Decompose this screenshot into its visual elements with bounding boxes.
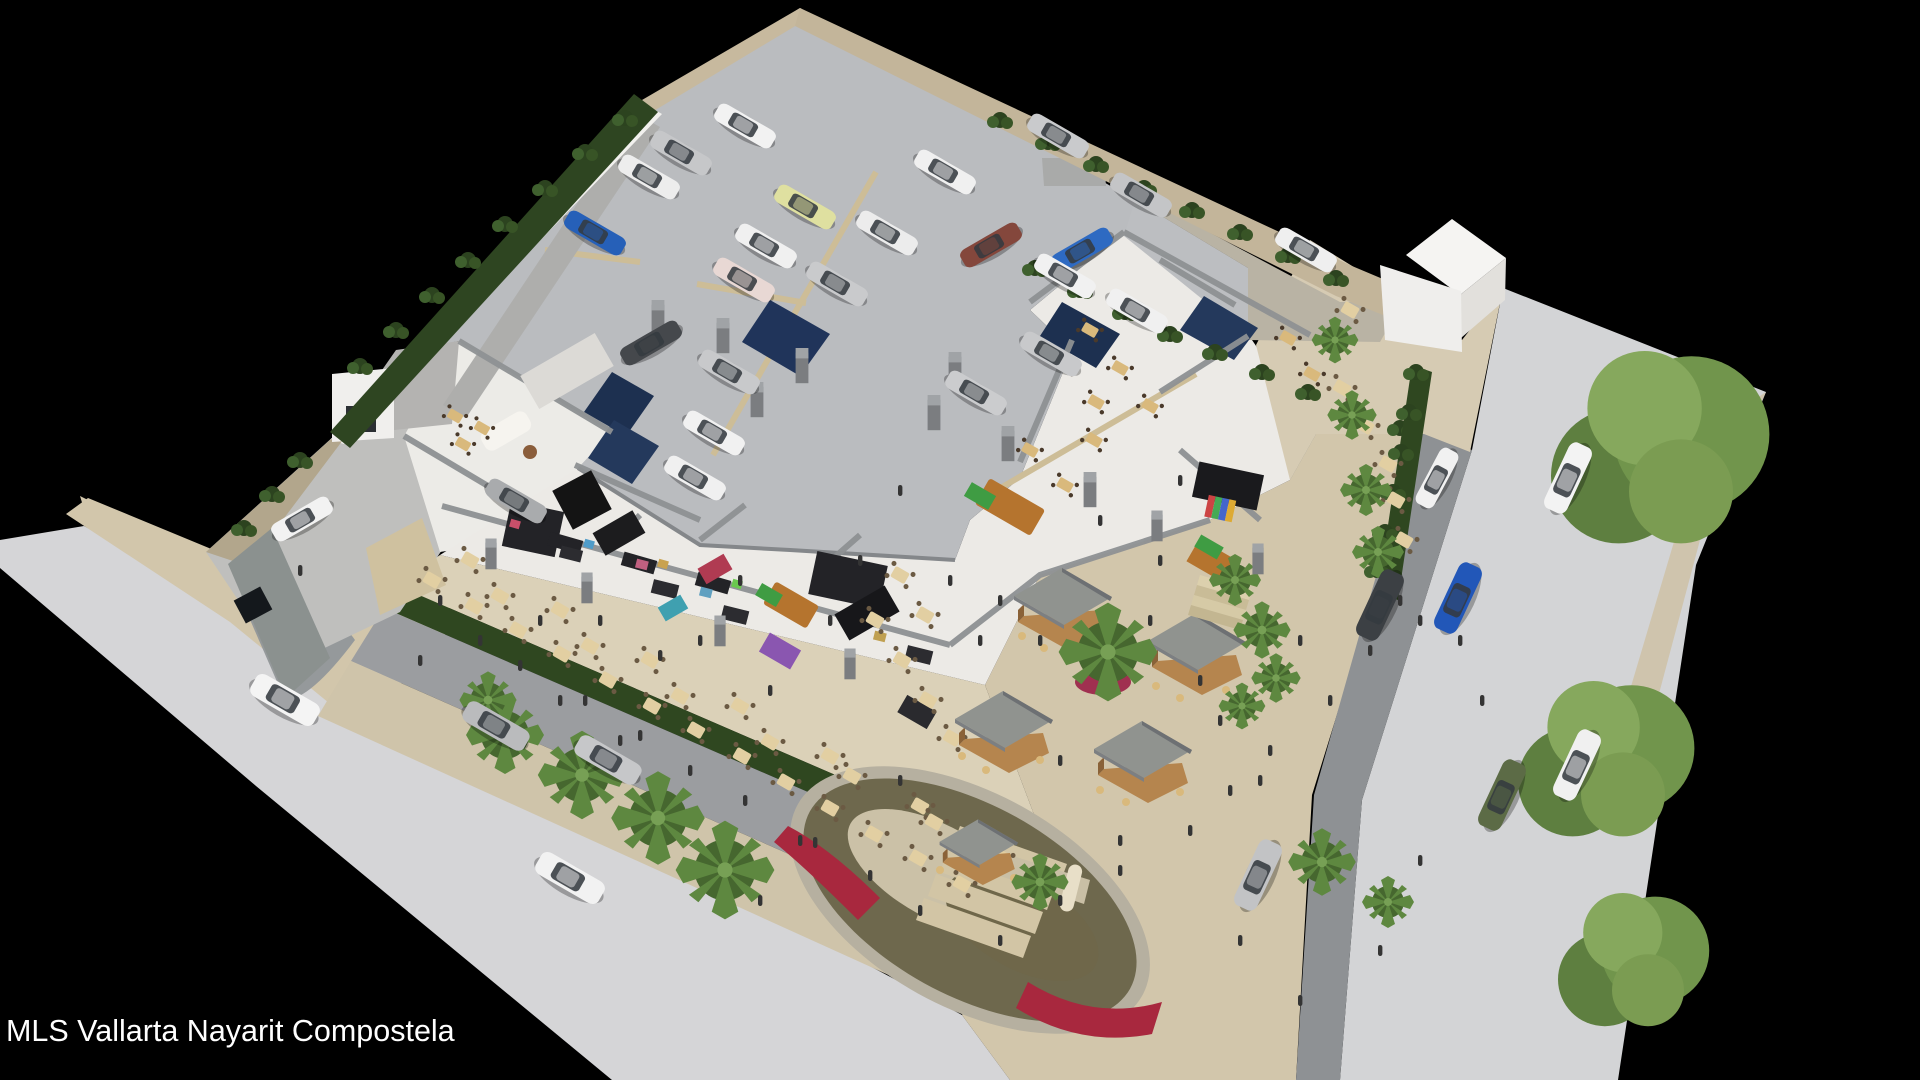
svg-text:MLS Vallarta Nayarit Compostel: MLS Vallarta Nayarit Compostela — [6, 1014, 455, 1048]
